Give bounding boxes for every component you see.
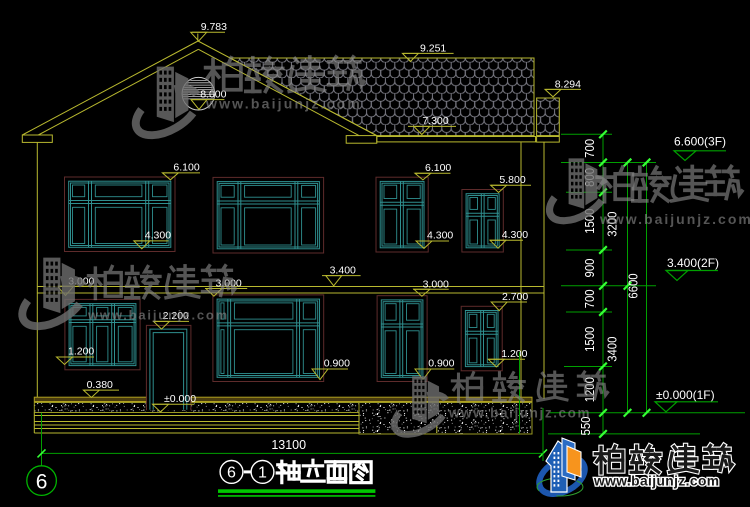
svg-text:1.200: 1.200 [501, 348, 527, 360]
svg-text:7.300: 7.300 [422, 115, 448, 127]
svg-text:1: 1 [258, 465, 267, 482]
svg-text:www.baijunjz.com: www.baijunjz.com [448, 406, 591, 421]
svg-text:0.900: 0.900 [324, 358, 350, 370]
svg-text:6.100: 6.100 [425, 162, 451, 174]
svg-text:www.baijunjz.com: www.baijunjz.com [593, 474, 719, 489]
svg-text:6.100: 6.100 [173, 162, 199, 174]
svg-text:4.300: 4.300 [427, 230, 453, 242]
svg-text:700: 700 [582, 289, 597, 308]
svg-text:www.baijunjz.com: www.baijunjz.com [205, 95, 362, 111]
svg-text:6.600(3F): 6.600(3F) [674, 135, 726, 149]
svg-text:1.200: 1.200 [68, 346, 94, 358]
svg-text:900: 900 [582, 259, 597, 278]
svg-text:www.baijunjz.com: www.baijunjz.com [599, 211, 750, 227]
svg-text:6: 6 [36, 470, 48, 493]
svg-text:8.294: 8.294 [555, 79, 581, 91]
svg-text:9.251: 9.251 [420, 43, 446, 55]
svg-text:3400: 3400 [605, 337, 620, 362]
svg-text:±0.000(1F): ±0.000(1F) [656, 388, 715, 402]
svg-text:4.300: 4.300 [145, 230, 171, 242]
svg-text:700: 700 [582, 139, 597, 158]
svg-text:4.300: 4.300 [502, 229, 528, 241]
svg-text:5.800: 5.800 [499, 174, 525, 186]
svg-text:13100: 13100 [271, 438, 306, 452]
svg-text:0.900: 0.900 [428, 358, 454, 370]
svg-text:6600: 6600 [626, 273, 641, 298]
svg-text:3.400(2F): 3.400(2F) [667, 256, 719, 270]
svg-text:3.400: 3.400 [330, 264, 356, 276]
svg-text:6: 6 [227, 465, 236, 482]
svg-text:±0.000: ±0.000 [164, 393, 196, 405]
svg-text:9.783: 9.783 [201, 21, 227, 33]
svg-text:www.baijunjz.com: www.baijunjz.com [87, 308, 229, 323]
svg-text:0.380: 0.380 [87, 379, 113, 391]
svg-text:2.700: 2.700 [502, 291, 528, 303]
svg-text:3.000: 3.000 [423, 278, 449, 290]
svg-text:1500: 1500 [582, 327, 597, 352]
